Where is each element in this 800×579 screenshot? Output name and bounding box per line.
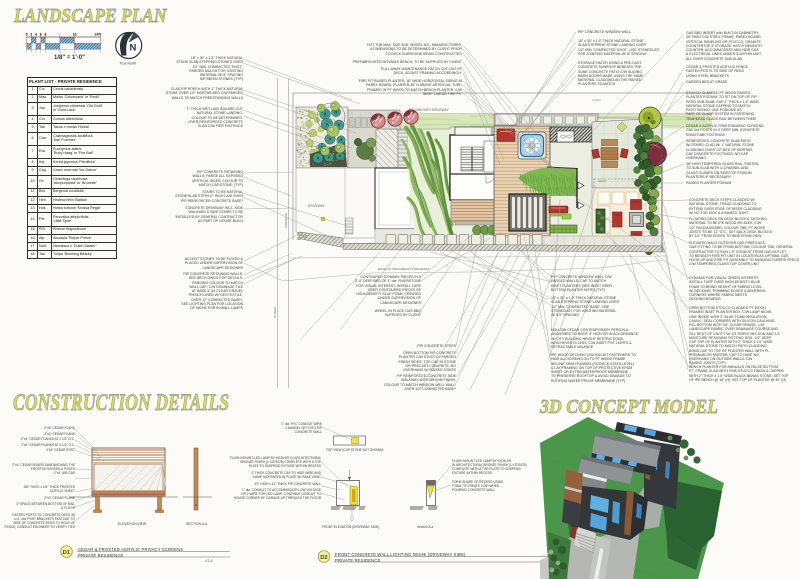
svg-text:N: N — [130, 43, 137, 54]
svg-text:D1: D1 — [63, 550, 71, 556]
svg-text:16: 16 — [73, 33, 77, 37]
svg-text:True North: True North — [120, 62, 137, 66]
svg-text:4: 4 — [35, 33, 37, 37]
svg-text:6: 6 — [40, 33, 42, 37]
svg-text:8: 8 — [44, 33, 46, 37]
svg-text:D2: D2 — [320, 555, 327, 561]
svg-text:2: 2 — [30, 33, 32, 37]
svg-text:0: 0 — [26, 33, 28, 37]
svg-text:24ft: 24ft — [95, 33, 102, 37]
svg-text:1/8" = 1'-0": 1/8" = 1'-0" — [54, 55, 85, 61]
